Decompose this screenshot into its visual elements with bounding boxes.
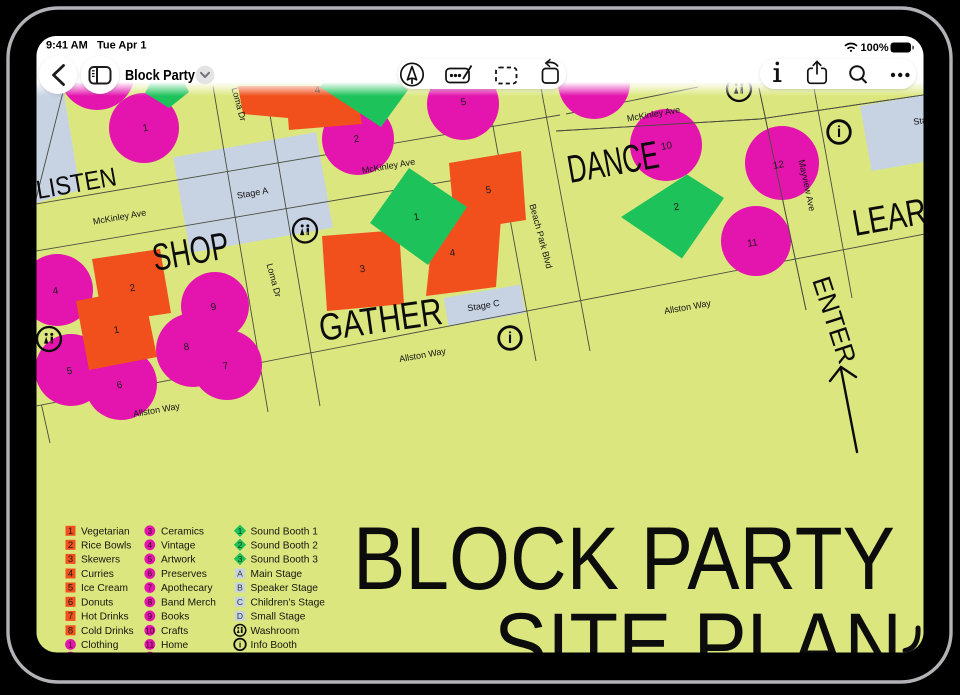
svg-text:8: 8 — [68, 626, 73, 637]
svg-text:Vintage: Vintage — [161, 540, 196, 551]
svg-text:C: C — [237, 597, 243, 607]
svg-text:4: 4 — [147, 540, 152, 550]
svg-text:7: 7 — [147, 583, 152, 593]
svg-text:9:41 AM: 9:41 AM — [46, 40, 88, 52]
svg-text:1: 1 — [238, 526, 243, 536]
svg-text:6: 6 — [147, 569, 152, 579]
svg-text:Speaker Stage: Speaker Stage — [251, 583, 319, 594]
svg-text:4: 4 — [68, 569, 73, 580]
svg-text:Sound Booth 2: Sound Booth 2 — [251, 540, 319, 551]
svg-text:Donuts: Donuts — [81, 597, 113, 608]
svg-text:5: 5 — [68, 583, 73, 594]
svg-text:B: B — [237, 583, 243, 593]
svg-text:5: 5 — [147, 554, 152, 564]
svg-text:D: D — [237, 611, 243, 621]
svg-text:7: 7 — [68, 611, 73, 622]
svg-text:Skewers: Skewers — [81, 555, 120, 566]
svg-text:3: 3 — [68, 554, 73, 565]
svg-text:2: 2 — [238, 540, 243, 550]
svg-text:10: 10 — [145, 625, 155, 635]
svg-text:i: i — [837, 124, 841, 141]
svg-text:Crafts: Crafts — [161, 626, 188, 637]
svg-text:Block Party: Block Party — [125, 67, 195, 84]
svg-text:Home: Home — [161, 640, 189, 651]
svg-text:Sound Booth 3: Sound Booth 3 — [251, 555, 319, 566]
svg-text:Ice Cream: Ice Cream — [81, 583, 128, 594]
svg-text:A: A — [237, 569, 243, 579]
svg-text:3: 3 — [238, 554, 243, 564]
svg-text:Info Booth: Info Booth — [251, 640, 297, 651]
svg-text:Vegetarian: Vegetarian — [81, 526, 130, 537]
svg-text:Main Stage: Main Stage — [251, 569, 303, 580]
svg-text:100%: 100% — [861, 42, 889, 54]
svg-text:Curries: Curries — [81, 569, 114, 580]
svg-text:Rice Bowls: Rice Bowls — [81, 540, 131, 551]
svg-text:BLOCK PARTY: BLOCK PARTY — [353, 508, 895, 608]
svg-text:Cold Drinks: Cold Drinks — [81, 626, 134, 637]
svg-text:Books: Books — [161, 612, 189, 623]
svg-text:Band Merch: Band Merch — [161, 597, 216, 608]
svg-text:Preserves: Preserves — [161, 569, 207, 580]
svg-text:Tue Apr 1: Tue Apr 1 — [97, 40, 147, 52]
svg-text:Sound Booth 1: Sound Booth 1 — [251, 526, 319, 537]
svg-text:Artwork: Artwork — [161, 555, 196, 566]
svg-text:9: 9 — [147, 611, 152, 621]
svg-text:2: 2 — [68, 540, 73, 551]
svg-text:Clothing: Clothing — [81, 640, 119, 651]
svg-text:3: 3 — [147, 526, 152, 536]
svg-text:6: 6 — [68, 597, 73, 608]
svg-text:Hot Drinks: Hot Drinks — [81, 612, 129, 623]
svg-text:i: i — [508, 330, 512, 347]
svg-text:1: 1 — [68, 639, 73, 649]
svg-text:i: i — [239, 639, 241, 649]
svg-text:Small Stage: Small Stage — [251, 612, 306, 623]
svg-text:Ceramics: Ceramics — [161, 526, 204, 537]
svg-text:8: 8 — [147, 597, 152, 607]
svg-text:Washroom: Washroom — [251, 626, 300, 637]
svg-text:Apothecary: Apothecary — [161, 583, 213, 594]
svg-text:1: 1 — [68, 526, 73, 537]
svg-text:Children's Stage: Children's Stage — [251, 597, 326, 608]
svg-text:11: 11 — [145, 639, 154, 649]
